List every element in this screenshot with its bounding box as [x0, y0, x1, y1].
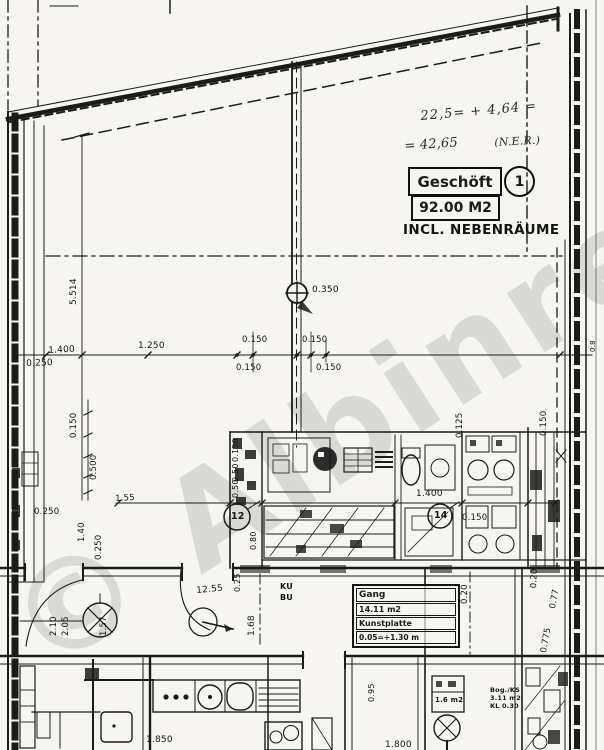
label-ku: KU — [280, 583, 293, 591]
right-room-line1: Bog./KS — [490, 686, 521, 694]
dim-0150-l: 0.150 — [70, 413, 79, 438]
stamp-room-name-box: Geschöft — [408, 167, 502, 196]
dim-095: 0.95 — [368, 683, 376, 702]
dim-0250-l: 0.250 — [34, 508, 59, 517]
dim-0150-h: 0.150 — [462, 514, 487, 523]
floorplan-sheet: © Albinre — [0, 0, 604, 750]
dim-140-l: 1.40 — [78, 522, 87, 542]
dim-050-cb: 0.50 — [232, 479, 240, 498]
ref-circle-14: 14 — [434, 511, 448, 521]
column-symbol — [286, 282, 313, 314]
dim-0150-bb: 0.150 — [316, 364, 341, 373]
dim-155: 1.55 — [115, 494, 135, 504]
right-room-block: Bog./KS 3.11 m2 KL 0.30 — [490, 686, 521, 710]
gang-room-name: Gang — [356, 588, 456, 602]
right-room-line2: 3.11 m2 — [490, 694, 521, 702]
dim-0150-ta: 0.150 — [242, 336, 267, 345]
dim-0125-r: 0.125 — [456, 413, 465, 438]
dim-020-b: 0.20 — [461, 584, 470, 604]
right-room-line3: KL 0.30 — [490, 702, 521, 710]
gang-room-floor: Kunstplatte — [356, 617, 456, 630]
dim-0250a: 0.250 — [26, 359, 53, 369]
stamp-room-number-circle: 1 — [504, 166, 535, 197]
dim-210: 2.10 — [50, 616, 59, 636]
dim-0150-r: 0.150 — [540, 411, 549, 436]
dim-1400b: 1.400 — [416, 490, 443, 499]
small-room-area: 1.6 m2 — [435, 697, 463, 704]
ref-circle-12: 12 — [231, 512, 245, 522]
top-slanted-wall — [8, 8, 558, 140]
dim-0150-c: 0.150 — [232, 438, 240, 462]
gang-room-box: Gang 14.11 m2 Kunstplatte 0.05=+1.30 m — [352, 584, 460, 648]
dim-1850: 1.850 — [146, 736, 173, 745]
dim-0250-lb: 0.250 — [95, 535, 104, 560]
stamp-room-name: Geschöft — [418, 173, 493, 191]
label-bu: BU — [280, 594, 293, 602]
stamp-area: 92.00 M2 — [419, 200, 492, 216]
handwriting-line2: = 42,65 — [404, 136, 458, 153]
handwriting-note: (N.E.R.) — [494, 135, 540, 148]
dim-205: 2.05 — [62, 616, 71, 636]
dim-0150-tb: 0.150 — [302, 336, 327, 345]
stamp-room-number: 1 — [515, 174, 525, 190]
dim-025-c: 0.25 — [234, 573, 242, 592]
kitchen-counter — [153, 656, 302, 750]
dim-020-r: 0.20 — [530, 568, 540, 588]
gang-room-level: 0.05=+1.30 m — [356, 631, 456, 644]
dim-08-r: 0.8 — [590, 340, 597, 352]
dim-0150-ba: 0.150 — [236, 364, 261, 373]
stamp-note: INCL. NEBENRÄUME — [403, 224, 559, 238]
dim-168: 1.68 — [248, 615, 257, 636]
dim-5514: 5.514 — [70, 278, 79, 305]
stamp-area-box: 92.00 M2 — [411, 195, 500, 221]
dim-080-c: 0.80 — [250, 531, 258, 550]
dim-1400a: 1.400 — [48, 346, 75, 356]
right-wall — [565, 0, 596, 750]
dim-1800: 1.800 — [385, 741, 412, 750]
gang-room-area: 14.11 m2 — [356, 603, 456, 616]
dim-0500-l: 0.500 — [90, 455, 99, 480]
dim-1250: 1.250 — [138, 342, 165, 351]
dim-157: 1.57 — [100, 616, 109, 636]
column-offset-label: 0.350 — [312, 286, 339, 295]
